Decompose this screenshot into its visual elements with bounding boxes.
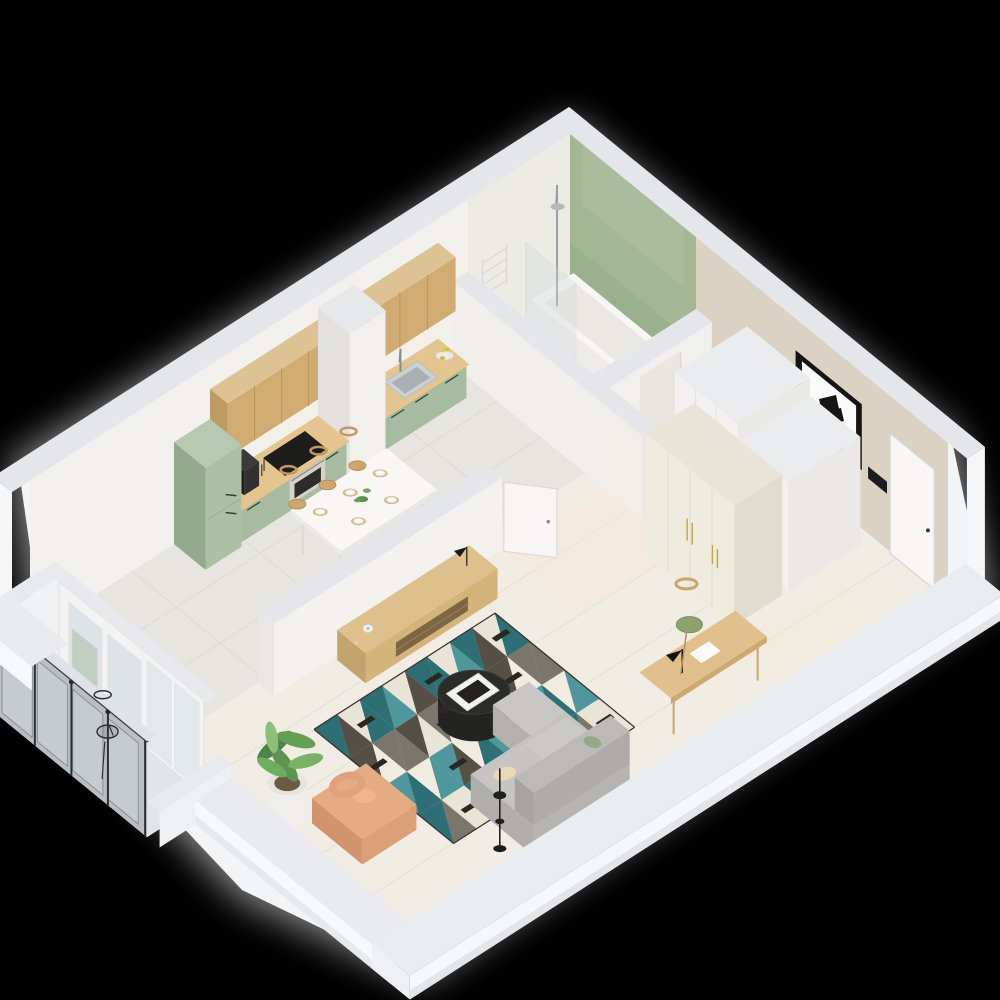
faucet-spout: [400, 349, 401, 361]
desk-chair-seat: [676, 617, 702, 633]
hall-door-open: [504, 482, 557, 558]
fruit: [440, 356, 445, 360]
floorplan-canvas: [0, 0, 1000, 1000]
fridge-handle: [226, 513, 236, 514]
plate: [375, 470, 385, 475]
shower-head: [551, 203, 565, 210]
divider-wall-end: [258, 611, 274, 696]
donut-decor: [354, 641, 359, 645]
dining-chair-seat: [349, 461, 366, 471]
dining-chair-seat: [319, 480, 336, 490]
plate: [387, 497, 397, 502]
entry-door-handle: [926, 528, 930, 532]
plate: [315, 509, 325, 514]
fridge-handle: [226, 495, 236, 496]
floor-lamp-disc: [495, 819, 504, 825]
floorplan-3d-render: [0, 0, 1000, 1000]
wire-chair-seat: [99, 726, 117, 737]
fruit-bowl: [436, 351, 454, 360]
fruit: [441, 349, 445, 352]
plate: [354, 518, 364, 523]
plate: [345, 490, 355, 495]
floor-lamp-disc: [493, 791, 506, 799]
door-handle: [546, 520, 550, 524]
donut-hole: [366, 627, 369, 630]
kitchen-column: [350, 310, 386, 477]
dining-chair-seat: [289, 499, 306, 509]
centerpiece-plant: [363, 488, 371, 492]
centerpiece-plant: [354, 498, 361, 502]
fruit: [445, 348, 450, 352]
shower-arm: [556, 189, 557, 204]
